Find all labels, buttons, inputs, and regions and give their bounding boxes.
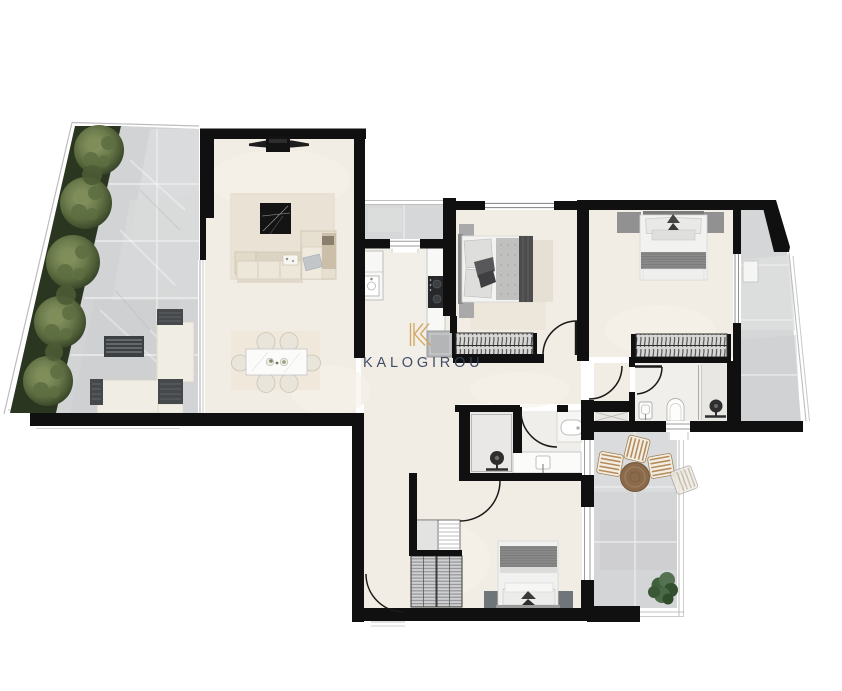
svg-text:KALOGIROU: KALOGIROU bbox=[363, 355, 483, 371]
